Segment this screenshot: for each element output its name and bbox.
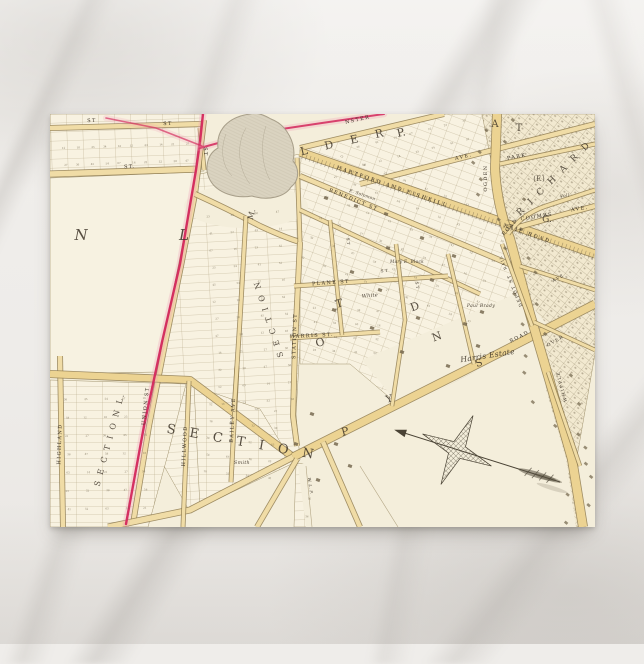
lot-number: 34	[332, 349, 336, 353]
vintage-map-graphic: 1218253441526314212727364554671623323847…	[50, 114, 595, 527]
lot-number: 45	[91, 162, 95, 166]
street-label: ST	[381, 268, 390, 274]
lot-number: 54	[144, 433, 148, 437]
lot-number: 16	[334, 335, 338, 339]
lot-number: 36	[285, 346, 289, 350]
lot-number: 41	[258, 262, 262, 266]
lot-number: 23	[242, 400, 246, 404]
lot-number: 38	[357, 308, 361, 312]
lot-number: 14	[126, 506, 130, 510]
estate-label: Paul Brady	[466, 303, 495, 309]
estate-label: Smith	[234, 460, 250, 466]
lot-number: 45	[123, 433, 127, 437]
lot-number: 23	[255, 245, 259, 249]
lot-number: 23	[144, 160, 148, 164]
lot-number: 12	[62, 146, 66, 150]
lot-number: 21	[171, 142, 175, 146]
lot-number: 63	[105, 506, 109, 510]
lot-number: 21	[143, 506, 147, 510]
lot-number: 32	[279, 244, 283, 248]
lot-number: 18	[143, 451, 147, 455]
district-letter: T	[516, 123, 523, 134]
lot-number: 38	[67, 452, 71, 456]
lot-number: 25	[124, 415, 128, 419]
lot-number: 58	[239, 332, 243, 336]
lot-number: 36	[236, 315, 240, 319]
lot-number: 52	[130, 143, 134, 147]
lot-number: 34	[282, 295, 286, 299]
lot-number: 23	[353, 336, 357, 340]
lot-number: 12	[83, 415, 87, 419]
lot-number: 63	[355, 322, 359, 326]
lot-number: 18	[285, 329, 289, 333]
lot-number: 58	[288, 363, 292, 367]
lot-number: 12	[122, 451, 126, 455]
lot-number: 67	[117, 161, 121, 165]
lot-number: 18	[77, 145, 81, 149]
lot-number: 54	[285, 312, 289, 316]
lot-number: 38	[106, 488, 110, 492]
lot-number: 23	[313, 306, 317, 310]
lot-number: 63	[242, 383, 246, 387]
lot-number: 21	[65, 434, 69, 438]
lot-number: 14	[87, 470, 91, 474]
lot-number: 58	[66, 416, 70, 420]
lot-number: 52	[373, 351, 377, 355]
lot-number: 47	[124, 488, 128, 492]
lot-number: 16	[282, 278, 286, 282]
lot-number: 63	[255, 228, 259, 232]
lot-number: 63	[66, 470, 70, 474]
lot-number: 14	[159, 142, 163, 146]
lot-number: 16	[308, 496, 312, 500]
lot-number: 54	[105, 397, 109, 401]
lot-number: 16	[221, 402, 225, 406]
street-label: ST	[163, 121, 173, 127]
map-postcard: 1218253441526314212727364554671623323847…	[50, 114, 595, 527]
lot-number: 54	[236, 281, 240, 285]
lot-number: 14	[377, 323, 381, 327]
lot-number: 41	[68, 507, 72, 511]
lot-number: 52	[85, 507, 89, 511]
lot-number: 36	[64, 397, 68, 401]
lot-number: 32	[266, 399, 270, 403]
lot-number: 41	[354, 350, 358, 354]
lot-number: 38	[173, 159, 177, 163]
lot-number: 32	[86, 488, 90, 492]
lot-number: 52	[279, 261, 283, 265]
lot-number: 21	[239, 349, 243, 353]
lot-number: 25	[212, 265, 216, 269]
lot-number: 27	[64, 163, 68, 167]
lot-number: 16	[233, 247, 237, 251]
lot-number: 34	[305, 514, 309, 518]
lot-number: 34	[233, 264, 237, 268]
lot-number: 21	[288, 380, 292, 384]
district-letter: (F.)	[533, 175, 545, 183]
street-label: OGDEN	[483, 164, 489, 191]
lot-number: 41	[314, 320, 318, 324]
lot-number: 38	[291, 397, 295, 401]
lot-number: 45	[84, 397, 88, 401]
lot-number: 18	[104, 415, 108, 419]
lot-number: 45	[212, 282, 216, 286]
lot-number: 27	[85, 434, 89, 438]
lot-number: 32	[159, 159, 163, 163]
lot-number: 38	[242, 366, 246, 370]
lot-number: 63	[144, 143, 148, 147]
lot-number: 27	[186, 142, 190, 146]
lot-number: 25	[91, 145, 95, 149]
lot-number: 32	[375, 337, 379, 341]
lot-number: 32	[218, 368, 222, 372]
lot-number: 58	[144, 487, 148, 491]
lot-number: 54	[105, 161, 109, 165]
lot-number: 12	[212, 300, 216, 304]
district-letter: L	[178, 226, 189, 244]
lot-number: 23	[206, 214, 210, 218]
street-label: ST	[87, 118, 97, 124]
lot-number: 12	[260, 330, 264, 334]
lot-number: 41	[118, 144, 122, 148]
lot-number: 52	[230, 230, 234, 234]
lot-number: 36	[142, 469, 146, 473]
lot-number: 14	[218, 351, 222, 355]
lot-number: 47	[376, 309, 380, 313]
lot-number: 36	[76, 162, 80, 166]
lot-number: 32	[230, 213, 234, 217]
lot-number: 52	[218, 385, 222, 389]
street-label: ST.	[124, 164, 136, 170]
lot-number: 47	[85, 452, 89, 456]
street-label: ST	[202, 147, 208, 157]
lot-number: 52	[333, 321, 337, 325]
lot-number: 47	[185, 159, 189, 163]
lot-number: 47	[215, 334, 219, 338]
lot-number: 47	[263, 365, 267, 369]
lot-number: 23	[65, 489, 69, 493]
district-letter: N	[73, 226, 88, 244]
lot-number: 27	[215, 317, 219, 321]
lot-number: 14	[279, 226, 283, 230]
lot-number: 34	[103, 144, 107, 148]
street-label: ST	[346, 238, 352, 247]
lot-number: 27	[124, 469, 128, 473]
district-letter: G.	[542, 215, 552, 225]
lot-number: 67	[209, 248, 213, 252]
lot-number: 41	[209, 231, 213, 235]
lot-number: 47	[276, 210, 280, 214]
district-letter: A	[490, 119, 499, 130]
lot-number: 27	[263, 347, 267, 351]
lot-number: 14	[266, 381, 270, 385]
lot-number: 18	[236, 298, 240, 302]
estate-label: Mary E. Block	[389, 259, 424, 264]
